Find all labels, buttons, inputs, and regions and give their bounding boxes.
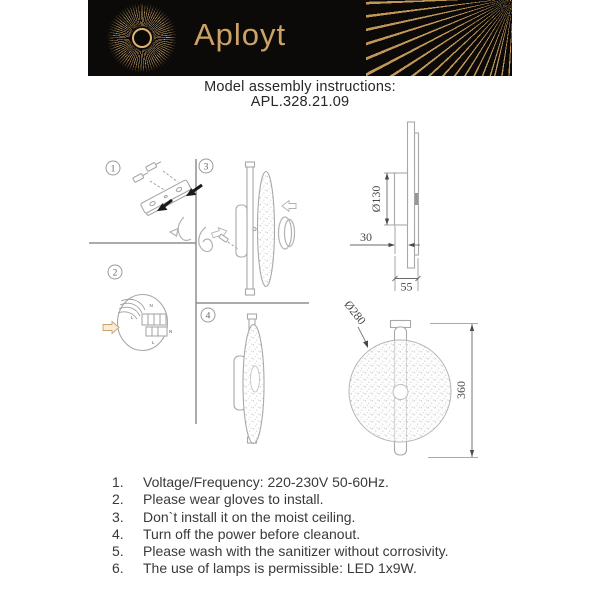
- instruction-item: 3. Don`t install it on the moist ceiling…: [112, 509, 532, 526]
- item-number: 5.: [112, 543, 143, 560]
- item-number: 2.: [112, 491, 143, 508]
- dim-depth-30: 30: [360, 230, 372, 244]
- mount-box: [236, 205, 247, 257]
- gold-arrow-icon: [103, 322, 119, 334]
- mount-box-side: [395, 173, 408, 225]
- direction-arrow-icon: [170, 229, 178, 237]
- step-2-number: 2: [113, 268, 118, 278]
- step-1-number: 1: [111, 164, 116, 174]
- instruction-item: 2. Please wear gloves to install.: [112, 491, 532, 508]
- step3-exploded-diagram: [199, 162, 296, 295]
- terminal-block: [142, 314, 167, 336]
- step2-wiring-diagram: N L N L: [103, 295, 172, 351]
- instruction-item: 1. Voltage/Frequency: 220-230V 50-60Hz.: [112, 474, 532, 491]
- item-text: Please wear gloves to install.: [143, 491, 324, 508]
- instruction-sheet: Aployt Model assembly instructions: APL.…: [0, 0, 600, 600]
- item-text: Turn off the power before cleanout.: [143, 526, 360, 543]
- item-number: 4.: [112, 526, 143, 543]
- item-text: Don`t install it on the moist ceiling.: [143, 509, 355, 526]
- dim-total-55: 55: [401, 280, 413, 294]
- wire-label-n: N: [169, 329, 172, 334]
- bracket-mark: [415, 193, 418, 205]
- hook-part: [178, 217, 191, 240]
- item-number: 3.: [112, 509, 143, 526]
- instruction-item: 4. Turn off the power before cleanout.: [112, 526, 532, 543]
- instructions-list: 1. Voltage/Frequency: 220-230V 50-60Hz. …: [112, 474, 532, 578]
- wire-label-n: N: [150, 303, 153, 308]
- instruction-item: 6. The use of lamps is permissible: LED …: [112, 560, 532, 577]
- item-text: Voltage/Frequency: 220-230V 50-60Hz.: [143, 474, 389, 491]
- front-view-drawing: 360 Ø280: [341, 298, 478, 458]
- item-text: Please wash with the sanitizer without c…: [143, 543, 449, 560]
- dim-height-360: 360: [454, 381, 468, 399]
- item-number: 1.: [112, 474, 143, 491]
- wall-bar: [247, 163, 253, 295]
- instruction-item: 5. Please wash with the sanitizer withou…: [112, 543, 532, 560]
- dim-diameter-280: Ø280: [341, 298, 368, 328]
- panel-dividers: [89, 159, 309, 424]
- step1-bracket-diagram: [133, 160, 202, 241]
- step-4-number: 4: [206, 311, 211, 321]
- item-number: 6.: [112, 560, 143, 577]
- wire-hook: [199, 227, 213, 252]
- item-text: The use of lamps is permissible: LED 1x9…: [143, 560, 417, 577]
- step-3-number: 3: [204, 162, 209, 172]
- mounting-bracket: [140, 179, 192, 216]
- side-view-drawing: Ø130 30 55: [350, 122, 421, 294]
- dim-diameter-130: Ø130: [369, 186, 383, 213]
- direction-arrow-icon: [282, 201, 296, 212]
- step4-assembled-diagram: [234, 314, 264, 444]
